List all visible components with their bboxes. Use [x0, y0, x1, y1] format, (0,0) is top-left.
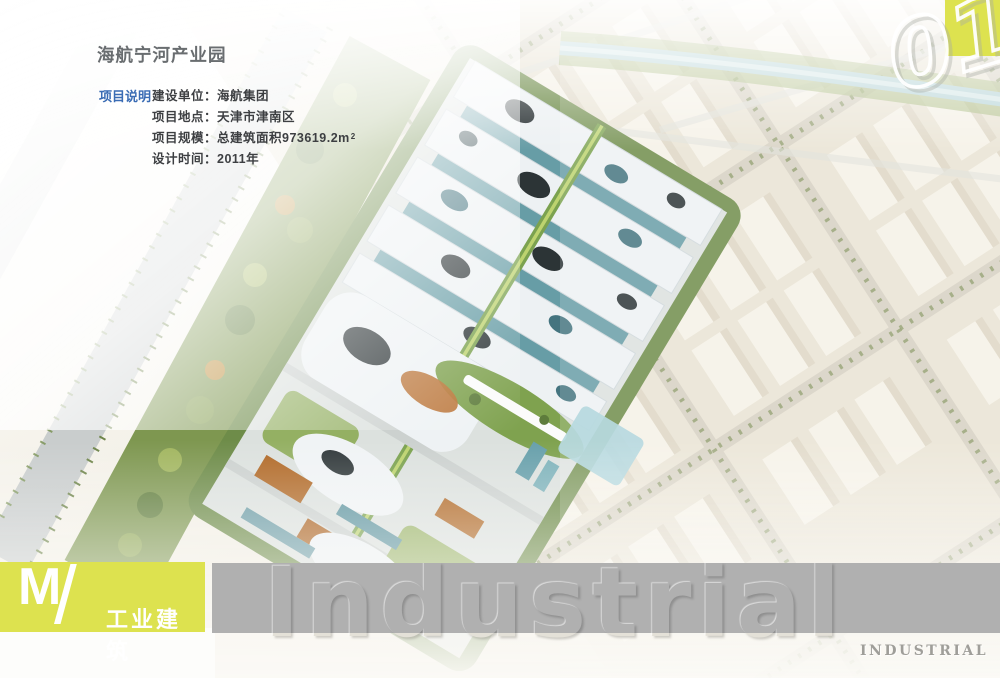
info-label: 建设单位：	[152, 85, 217, 104]
industrial-watermark-lower: Industrial	[264, 633, 846, 659]
info-line-scale: 项目规模：总建筑面积973619.2m2	[152, 126, 356, 147]
info-value: 海航集团	[217, 85, 269, 104]
info-label: 项目地点：	[152, 106, 217, 125]
info-value: 天津市津南区	[217, 106, 295, 125]
project-info-label: 项目说明	[99, 86, 151, 105]
slash-divider: /	[54, 555, 77, 637]
info-label: 项目规模：	[152, 127, 217, 146]
info-line-date: 设计时间：2011年	[152, 147, 356, 168]
category-label: 工业建筑	[106, 602, 205, 666]
page-title: 海航宁河产业园	[97, 42, 227, 67]
info-value: 2011年	[217, 148, 259, 167]
footer-gray-band: Industrial	[212, 563, 1000, 633]
page-number: 01	[874, 0, 1000, 113]
wash-corner	[0, 0, 520, 430]
industrial-watermark: Industrial	[264, 563, 846, 633]
info-line-owner: 建设单位：海航集团	[152, 84, 356, 105]
project-info-list: 建设单位：海航集团 项目地点：天津市津南区 项目规模：总建筑面积973619.2…	[152, 84, 356, 168]
industrial-corner-label: INDUSTRIAL	[860, 643, 988, 659]
info-label: 设计时间：	[152, 148, 217, 167]
category-box: M / 工业建筑	[0, 562, 205, 632]
page-number-badge: 01 01	[830, 0, 1000, 135]
info-value: 总建筑面积973619.2m	[217, 127, 350, 146]
presentation-board: 海航宁河产业园 项目说明 建设单位：海航集团 项目地点：天津市津南区 项目规模：…	[0, 0, 1000, 678]
info-value-sup: 2	[351, 132, 356, 141]
info-line-location: 项目地点：天津市津南区	[152, 105, 356, 126]
